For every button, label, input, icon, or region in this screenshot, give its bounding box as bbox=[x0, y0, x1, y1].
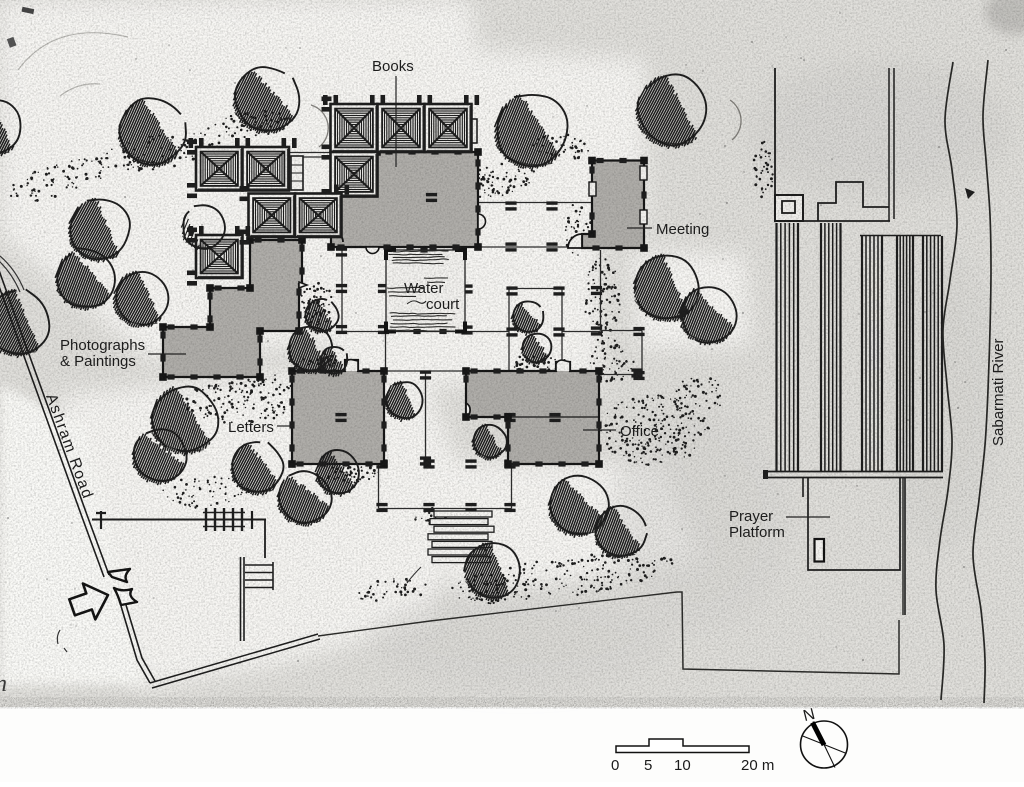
svg-text:20 m: 20 m bbox=[741, 757, 774, 774]
svg-text:10: 10 bbox=[674, 757, 691, 774]
svg-text:5: 5 bbox=[644, 757, 652, 774]
svg-text:0: 0 bbox=[611, 757, 619, 774]
